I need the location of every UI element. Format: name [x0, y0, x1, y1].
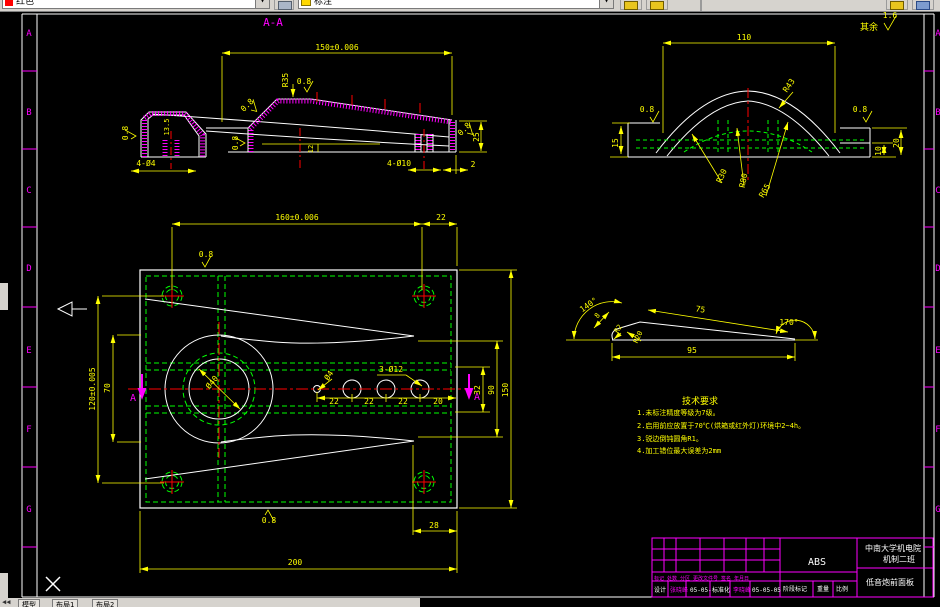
- dim: 15: [611, 138, 620, 148]
- dim: 22: [436, 213, 446, 222]
- finish: 0.8: [239, 97, 256, 114]
- layout-tab-bar: ◀◀ 模型 布局1 布局2: [0, 598, 420, 607]
- dim-update-icon: [650, 1, 664, 10]
- dim: 140°: [578, 296, 599, 314]
- tb-cell: 05-05-05: [752, 587, 781, 594]
- view-plan: [98, 224, 517, 573]
- tb-cell: 李晓峰: [733, 586, 751, 594]
- finish: 0.8: [297, 77, 312, 86]
- finish: 1.6: [883, 11, 898, 20]
- dim: 22: [364, 397, 374, 406]
- tech-line: 4.加工错位最大误差为2mm: [637, 446, 721, 455]
- layer-control-combo[interactable]: 标注 ▾: [298, 0, 614, 9]
- dim: 13.5: [163, 119, 171, 136]
- zone-letter: B: [26, 108, 31, 118]
- toolbar-button-dim-style[interactable]: [620, 0, 642, 10]
- properties-icon: [278, 1, 292, 10]
- dim: 28: [429, 521, 439, 530]
- dim: 4-Ø10: [387, 158, 411, 168]
- layer-combo-value: 标注: [314, 0, 332, 7]
- toolbar-button-tool-palette[interactable]: [886, 0, 908, 10]
- tb-partname: 低音炮前面板: [866, 577, 914, 587]
- dim: 110: [737, 33, 752, 42]
- dim: 32: [473, 385, 482, 395]
- dim: R65: [757, 182, 772, 199]
- zone-letter: G: [26, 505, 31, 515]
- dim: 8: [593, 312, 602, 320]
- layer-bulb-icon: [301, 0, 311, 6]
- dim: 75: [695, 304, 706, 314]
- section-hatch: [145, 101, 453, 157]
- docked-panel-edge[interactable]: [0, 283, 8, 310]
- drawing-canvas[interactable]: ABCDEFGABCDEFGA-A150±0.006R350.80.813.50…: [0, 0, 940, 607]
- dim: R35: [281, 73, 290, 88]
- tech-title: 技术要求: [682, 395, 718, 407]
- dim: 25: [472, 132, 481, 142]
- finish: 0.8: [456, 121, 473, 138]
- centerlines: [128, 284, 470, 494]
- note: 其余: [860, 21, 878, 33]
- tech-line: 1.未标注精度等级为7级。: [637, 408, 720, 417]
- zone-letter: D: [935, 264, 940, 274]
- zone-letter: E: [26, 346, 31, 356]
- dim: 3-Ø12: [379, 364, 403, 374]
- view-direction-arrow-icon: [58, 302, 87, 316]
- tab-layout2[interactable]: 布局2: [92, 599, 118, 607]
- dim: 170°: [779, 318, 798, 327]
- tb-cell: 标准化: [712, 586, 730, 594]
- cad-application-window: ABCDEFGABCDEFGA-A150±0.006R350.80.813.50…: [0, 0, 940, 607]
- top-toolbar: 红色 ▾ 标注 ▾: [0, 0, 940, 12]
- tech-line: 2.启用前应放置于70℃(烘箱或红外灯)环境中2~4h。: [637, 421, 805, 430]
- dim: 160±0.006: [275, 213, 319, 222]
- view-section-aa: [125, 53, 487, 174]
- annotation-texts: ABCDEFGABCDEFGA-A150±0.006R350.80.813.50…: [26, 11, 940, 594]
- zone-letter: F: [935, 425, 940, 435]
- finish: 0.8: [640, 105, 655, 114]
- finish: 0.8: [199, 250, 214, 259]
- dim: 12: [307, 145, 315, 153]
- toolbar-button-dim-update[interactable]: [646, 0, 668, 10]
- tb-cell: 05-05-: [690, 587, 712, 594]
- dim: 22: [329, 397, 339, 406]
- dim: R43: [781, 77, 797, 94]
- dim: 200: [288, 558, 303, 567]
- tab-model[interactable]: 模型: [18, 599, 40, 607]
- dim: 150: [501, 383, 510, 398]
- color-combo-value: 红色: [16, 0, 34, 7]
- dim: R20: [632, 330, 645, 345]
- dim-style-icon: [624, 1, 638, 10]
- tb-class: 机制二班: [883, 554, 915, 564]
- dim: 120±0.005: [88, 367, 97, 411]
- dim: R80: [738, 172, 750, 188]
- crosshair-cursor-icon: [46, 577, 60, 591]
- dim: 10: [874, 146, 883, 156]
- tb-cell: 阶段标记: [783, 585, 807, 593]
- dim: 150±0.006: [315, 43, 359, 52]
- dim: 70: [103, 383, 112, 393]
- dim: 4-Ø4: [136, 158, 155, 168]
- chevron-down-icon[interactable]: ▾: [599, 0, 613, 8]
- color-control-combo[interactable]: 红色 ▾: [2, 0, 270, 9]
- finish: 0.8: [262, 516, 277, 525]
- zone-letter: F: [26, 425, 31, 435]
- zone-letter: D: [26, 264, 31, 274]
- toolbar-separator: [700, 0, 702, 11]
- centerlines: [171, 92, 424, 169]
- zone-letter: A: [26, 29, 32, 39]
- zone-letter: A: [935, 29, 940, 39]
- tb-cell: 比例: [836, 585, 848, 593]
- dim: 2: [471, 160, 476, 169]
- tab-nav-arrows[interactable]: ◀◀: [2, 598, 10, 606]
- tb-cell: 设计: [654, 586, 666, 594]
- tb-cell: 张晓峰: [670, 586, 688, 594]
- dim: 20: [433, 397, 443, 406]
- drawing-border: [22, 14, 934, 597]
- layers-icon: [916, 1, 930, 10]
- section-mark: A: [130, 393, 136, 404]
- chevron-down-icon[interactable]: ▾: [255, 0, 269, 8]
- section-title: A-A: [263, 16, 283, 29]
- zone-letter: E: [935, 346, 940, 356]
- tb-school: 中南大学机电院: [865, 543, 921, 553]
- finish: 0.8: [853, 105, 868, 114]
- finish: 0.8: [121, 126, 130, 141]
- zone-letter: G: [935, 505, 940, 515]
- dim: R2: [613, 323, 624, 335]
- finish: 0.8: [231, 136, 240, 151]
- dim: R30: [715, 167, 729, 184]
- dim: 22: [398, 397, 408, 406]
- dim: 20: [892, 138, 901, 148]
- toolbar-button-properties[interactable]: [274, 0, 294, 10]
- tb-material: ABS: [808, 557, 826, 568]
- toolbar-button-layers[interactable]: [912, 0, 934, 10]
- zone-letter: B: [935, 108, 940, 118]
- zone-letter: C: [26, 186, 31, 196]
- dim: 90: [487, 385, 496, 395]
- tb-cell: 重量: [817, 585, 829, 593]
- dim: 95: [687, 346, 697, 355]
- tab-layout1[interactable]: 布局1: [52, 599, 78, 607]
- zone-letter: C: [935, 186, 940, 196]
- tool-palette-icon: [890, 1, 904, 10]
- tech-line: 3.锐边倒钝圆角R1。: [637, 434, 703, 443]
- color-swatch-icon: [5, 0, 13, 6]
- tb-header: 标记 处数 分区 更改文件号 签名 年月日: [654, 575, 749, 582]
